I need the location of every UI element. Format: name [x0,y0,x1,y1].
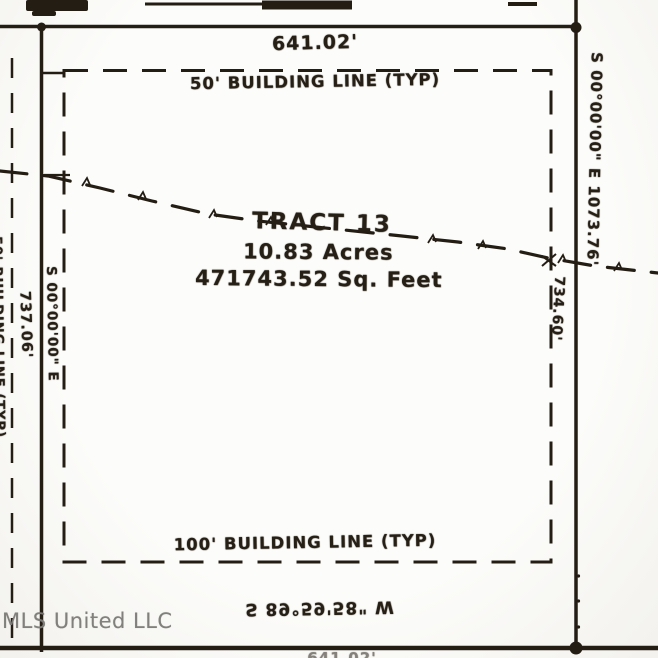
east-line-tick-3 [577,625,580,628]
tract-acres-label: 10.83 Acres [243,240,394,263]
east-line-tick-2 [577,599,580,602]
north-line-distance-label: 641.02' [255,32,375,55]
corner-monument-ne [571,22,582,33]
top-left-clipped-mark [26,0,88,11]
west-line-bearing-label: S 00°00'00" E [44,266,61,406]
tract-square-feet-label: 471743.52 Sq. Feet [195,267,443,291]
south-line-clipped-distance-label: 641.02' [292,651,392,658]
mls-watermark: MLS United LLC [2,609,173,633]
top-left-clipped-mark-2 [32,11,56,16]
east-line-tick-1 [577,574,580,577]
tract-name-label: TRACT 13 [252,209,392,237]
survey-plat-image: 641.02' 50' BUILDING LINE (TYP) TRACT 13… [0,0,658,658]
corner-monument-nw [37,23,46,32]
south-line-bearing-label: S 89°59'58" W [225,596,415,617]
west-line-distance-label: 737.06' [16,291,35,396]
corner-monument-se [570,642,583,655]
building-setback-line [64,71,551,563]
